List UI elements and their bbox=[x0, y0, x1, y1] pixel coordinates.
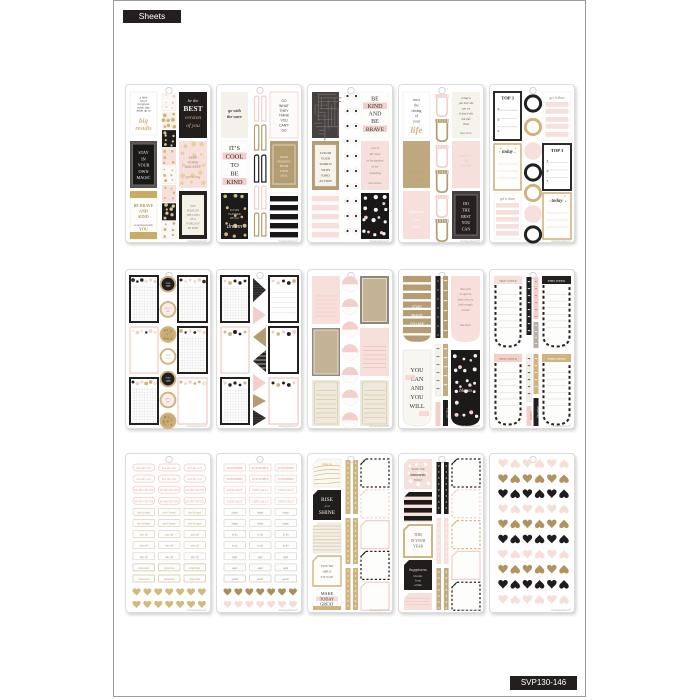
svg-text:thehappyplanner®: thehappyplanner® bbox=[551, 425, 571, 428]
svg-text:WITH A: WITH A bbox=[230, 216, 239, 220]
svg-text:MAKE IT: MAKE IT bbox=[460, 154, 473, 158]
svg-text:YOU: YOU bbox=[166, 358, 171, 360]
svg-text:RISE: RISE bbox=[321, 497, 334, 503]
svg-text:BEST: BEST bbox=[165, 399, 171, 401]
svg-text:BRAVE: BRAVE bbox=[366, 127, 385, 133]
svg-text:dream: dream bbox=[227, 224, 243, 230]
svg-text:THINK: THINK bbox=[279, 114, 290, 118]
svg-text:don’t forget: don’t forget bbox=[188, 523, 201, 526]
svg-text:but this: but this bbox=[462, 117, 472, 121]
svg-text:get it done: get it done bbox=[549, 96, 565, 100]
svg-text:SO MUCH FUN: SO MUCH FUN bbox=[185, 489, 204, 492]
svg-text:thehappyplanner®: thehappyplanner® bbox=[187, 609, 207, 612]
svg-text:ESPECIALLY: ESPECIALLY bbox=[277, 489, 294, 492]
svg-text:GOING: GOING bbox=[188, 161, 199, 165]
svg-text:MAGIC: MAGIC bbox=[137, 175, 151, 180]
svg-text:be open to: be open to bbox=[460, 293, 472, 296]
svg-text:YOU: YOU bbox=[190, 205, 196, 208]
svg-text:BEST: BEST bbox=[461, 214, 471, 219]
svg-text:get it done: get it done bbox=[500, 197, 516, 201]
svg-text:day off: day off bbox=[140, 534, 149, 537]
svg-text:day off: day off bbox=[165, 556, 174, 559]
svg-text:THIS WEEK: THIS WEEK bbox=[499, 279, 518, 283]
svg-text:thehappyplanner®: thehappyplanner® bbox=[460, 609, 480, 612]
svg-text:a bag is: a bag is bbox=[461, 96, 471, 100]
svg-text:DAY: DAY bbox=[166, 401, 171, 404]
svg-text:from: from bbox=[413, 218, 420, 222]
svg-text:of you: of you bbox=[186, 122, 200, 129]
svg-text:go with: go with bbox=[227, 108, 241, 113]
svg-text:TO YOU: TO YOU bbox=[321, 575, 334, 579]
svg-text:the: the bbox=[414, 103, 419, 107]
svg-text:can we: can we bbox=[462, 106, 471, 110]
svg-text:trust: trust bbox=[413, 98, 421, 102]
svg-text:all have: all have bbox=[370, 152, 381, 156]
svg-text:and: and bbox=[324, 504, 329, 508]
svg-text:day off: day off bbox=[191, 545, 200, 548]
svg-text:THE: THE bbox=[462, 207, 470, 212]
svg-text:your: your bbox=[413, 120, 421, 124]
svg-text:best day ever: best day ever bbox=[162, 478, 178, 481]
svg-text:Rae Dunn: Rae Dunn bbox=[460, 131, 472, 135]
svg-text:THIS WEEK: THIS WEEK bbox=[547, 357, 566, 361]
svg-text:bloom: bloom bbox=[459, 389, 472, 394]
svg-text:thehappyplanner®: thehappyplanner® bbox=[278, 425, 298, 428]
svg-text:BE: BE bbox=[371, 97, 379, 103]
svg-text:today: today bbox=[232, 523, 239, 526]
svg-text:thehappyplanner®: thehappyplanner® bbox=[278, 609, 298, 612]
svg-text:AND: AND bbox=[411, 386, 425, 392]
svg-text:IN: IN bbox=[141, 156, 145, 161]
svg-text:TODAY: TODAY bbox=[414, 478, 423, 482]
svg-text:those who are: those who are bbox=[458, 298, 474, 301]
svg-text:goals: goals bbox=[257, 578, 263, 581]
svg-text:you love she: you love she bbox=[458, 101, 474, 105]
svg-text:AN: AN bbox=[464, 159, 469, 163]
svg-text:ESPECIALLY: ESPECIALLY bbox=[277, 500, 294, 503]
svg-text:ESPECIALLY: ESPECIALLY bbox=[226, 489, 243, 492]
svg-text:SHINE: SHINE bbox=[319, 510, 336, 516]
svg-text:to do: to do bbox=[283, 534, 289, 537]
svg-text:WILL: WILL bbox=[410, 404, 425, 410]
svg-text:goals: goals bbox=[232, 578, 238, 581]
svg-text:AND KEEP: AND KEEP bbox=[185, 165, 201, 169]
svg-text:DO: DO bbox=[463, 201, 469, 206]
svg-text:thehappyplanner®: thehappyplanner® bbox=[460, 240, 480, 243]
svg-text:blooms: blooms bbox=[414, 574, 424, 578]
svg-text:SO POSSIBLE: SO POSSIBLE bbox=[226, 478, 243, 481]
svg-text:it don’t wilt: it don’t wilt bbox=[459, 112, 473, 116]
svg-text:big: big bbox=[139, 117, 148, 125]
svg-text:DO: DO bbox=[281, 99, 286, 103]
svg-text:important: important bbox=[189, 567, 200, 570]
svg-text:thehappyplanner®: thehappyplanner® bbox=[369, 425, 389, 428]
svg-text:day off: day off bbox=[165, 534, 174, 537]
svg-text:SOUL: SOUL bbox=[280, 173, 288, 177]
svg-text:thehappyplanner®: thehappyplanner® bbox=[278, 240, 298, 243]
svg-text:KIND: KIND bbox=[280, 155, 288, 159]
svg-text:YOU: YOU bbox=[139, 227, 148, 232]
svg-text:SO POSSIBLE: SO POSSIBLE bbox=[277, 478, 294, 481]
svg-text:KIND: KIND bbox=[226, 179, 243, 186]
svg-text:BE: BE bbox=[230, 171, 238, 178]
svg-text:IN YOUR: IN YOUR bbox=[411, 539, 426, 543]
svg-text:day off: day off bbox=[191, 534, 200, 537]
svg-text:don’t forget: don’t forget bbox=[137, 511, 150, 514]
svg-text:SO POSSIBLE: SO POSSIBLE bbox=[252, 467, 269, 470]
svg-text:YEAR: YEAR bbox=[413, 545, 423, 549]
svg-text:today: today bbox=[551, 199, 563, 204]
svg-text:the wave: the wave bbox=[227, 114, 242, 119]
svg-text:YOU: YOU bbox=[166, 378, 171, 380]
svg-text:MAKE: MAKE bbox=[321, 591, 334, 596]
svg-text:version: version bbox=[185, 115, 201, 121]
svg-text:DO: DO bbox=[281, 128, 286, 132]
svg-text:to do: to do bbox=[257, 534, 263, 537]
svg-text:thehappyplanner®: thehappyplanner® bbox=[460, 425, 480, 428]
svg-text:important: important bbox=[164, 567, 175, 570]
svg-text:BE KIND: BE KIND bbox=[188, 227, 199, 230]
svg-text:best day ever: best day ever bbox=[162, 467, 178, 470]
svg-text:important: important bbox=[138, 567, 149, 570]
svg-text:ESPECIALLY: ESPECIALLY bbox=[251, 489, 268, 492]
svg-text:SO POSSIBLE: SO POSSIBLE bbox=[252, 478, 269, 481]
svg-text:thehappyplanner®: thehappyplanner® bbox=[551, 240, 571, 243]
svg-text:AND: AND bbox=[369, 112, 383, 118]
svg-text:growing: growing bbox=[186, 174, 202, 179]
svg-text:don’t forget: don’t forget bbox=[137, 523, 150, 526]
svg-text:COLOR: COLOR bbox=[320, 151, 332, 155]
svg-text:FROM: FROM bbox=[280, 164, 289, 168]
svg-text:BEST: BEST bbox=[165, 308, 171, 310]
svg-text:to do: to do bbox=[232, 534, 238, 537]
svg-text:happiness: happiness bbox=[409, 567, 427, 572]
svg-text:YOU ARE: YOU ARE bbox=[410, 322, 424, 326]
svg-text:KIND: KIND bbox=[321, 173, 330, 177]
svg-text:Rae Dunn: Rae Dunn bbox=[460, 324, 471, 327]
svg-text:WHERE: WHERE bbox=[411, 314, 423, 318]
svg-text:YOU: YOU bbox=[166, 283, 171, 285]
svg-text:shine on: shine on bbox=[322, 462, 333, 466]
svg-text:appt: appt bbox=[283, 567, 288, 570]
svg-text:YOU: YOU bbox=[411, 368, 425, 374]
svg-text:moment: moment bbox=[410, 472, 426, 477]
svg-text:SO POSSIBLE: SO POSSIBLE bbox=[277, 467, 294, 470]
svg-text:STAY: STAY bbox=[138, 150, 148, 155]
svg-text:BE: BE bbox=[371, 119, 379, 125]
svg-text:SO MUCH FUN: SO MUCH FUN bbox=[160, 500, 179, 503]
svg-text:best day ever: best day ever bbox=[187, 467, 203, 470]
svg-text:SEIZE THE: SEIZE THE bbox=[411, 467, 425, 471]
svg-text:adds up to: adds up to bbox=[136, 109, 150, 113]
svg-text:THIS WEEK: THIS WEEK bbox=[499, 357, 518, 361]
svg-text:appt: appt bbox=[232, 567, 237, 570]
svg-text:you’d: you’d bbox=[370, 146, 379, 150]
svg-text:Joan Rivers: Joan Rivers bbox=[368, 181, 382, 185]
svg-text:bold enough: bold enough bbox=[459, 304, 474, 307]
svg-text:amazing: amazing bbox=[369, 171, 381, 175]
svg-text:HUMANS: HUMANS bbox=[277, 160, 290, 164]
svg-text:DAY: DAY bbox=[166, 310, 171, 313]
svg-text:YOU: YOU bbox=[411, 395, 425, 401]
svg-text:CAN: CAN bbox=[166, 380, 171, 383]
svg-text:THE LIVES: THE LIVES bbox=[186, 214, 200, 217]
svg-text:don’t forget: don’t forget bbox=[163, 523, 176, 526]
svg-text:thehappyplanner®: thehappyplanner® bbox=[187, 425, 207, 428]
svg-text:WORLD: WORLD bbox=[319, 162, 332, 166]
svg-text:appt: appt bbox=[258, 556, 263, 559]
svg-text:to be perfect: to be perfect bbox=[367, 158, 385, 162]
svg-text:today: today bbox=[257, 523, 264, 526]
svg-text:YES: YES bbox=[166, 355, 171, 357]
svg-text:MAKE ON: MAKE ON bbox=[187, 209, 199, 212]
svg-text:day off: day off bbox=[165, 545, 174, 548]
svg-text:does will: does will bbox=[460, 288, 470, 291]
svg-text:best day ever: best day ever bbox=[136, 478, 152, 481]
svg-text:don’t forget: don’t forget bbox=[163, 511, 176, 514]
svg-text:timing: timing bbox=[412, 109, 422, 113]
svg-text:START: START bbox=[412, 305, 422, 309]
svg-text:to do: to do bbox=[257, 545, 263, 548]
svg-text:important: important bbox=[164, 578, 175, 581]
svg-text:THIS WEEK: THIS WEEK bbox=[547, 279, 566, 283]
svg-text:WITH: WITH bbox=[321, 168, 330, 172]
svg-text:SO MUCH FUN: SO MUCH FUN bbox=[185, 500, 204, 503]
svg-text:ESPECIALLY: ESPECIALLY bbox=[226, 500, 243, 503]
svg-text:appt: appt bbox=[232, 556, 237, 559]
svg-text:WORLD OF: WORLD OF bbox=[186, 223, 200, 226]
svg-text:AND: AND bbox=[139, 209, 148, 214]
svg-text:KEEP: KEEP bbox=[189, 156, 198, 160]
svg-text:BEST: BEST bbox=[183, 104, 202, 113]
svg-text:from: from bbox=[415, 578, 421, 582]
svg-text:PLANNER: PLANNER bbox=[228, 212, 240, 216]
svg-text:LOVE: LOVE bbox=[529, 412, 533, 421]
svg-text:GREAT: GREAT bbox=[320, 601, 334, 606]
svg-text:KIND: KIND bbox=[138, 214, 149, 219]
svg-text:ACTION: ACTION bbox=[319, 179, 332, 183]
svg-text:thehappyplanner®: thehappyplanner® bbox=[369, 240, 389, 243]
svg-text:important: important bbox=[138, 578, 149, 581]
svg-text:KIND: KIND bbox=[368, 104, 384, 110]
svg-text:TO: TO bbox=[230, 162, 239, 169]
svg-text:today: today bbox=[283, 511, 290, 514]
svg-text:THEY: THEY bbox=[279, 109, 289, 113]
svg-text:YOU: YOU bbox=[280, 119, 288, 123]
svg-text:today: today bbox=[232, 511, 239, 514]
svg-text:ESPECIALLY: ESPECIALLY bbox=[251, 500, 268, 503]
svg-text:ABLE: ABLE bbox=[323, 569, 332, 573]
svg-text:WHAT: WHAT bbox=[279, 104, 289, 108]
svg-text:THIS: THIS bbox=[414, 533, 422, 537]
svg-text:SO MUCH FUN: SO MUCH FUN bbox=[160, 489, 179, 492]
svg-text:BE BRAVE: BE BRAVE bbox=[134, 203, 154, 208]
svg-text:within: within bbox=[414, 583, 422, 587]
svg-text:important: important bbox=[189, 578, 200, 581]
svg-text:be the: be the bbox=[188, 98, 199, 103]
svg-text:OF A: OF A bbox=[190, 218, 196, 221]
svg-text:results: results bbox=[135, 126, 152, 132]
svg-text:thehappyplanner®: thehappyplanner® bbox=[551, 609, 571, 612]
svg-text:dream big: dream big bbox=[536, 406, 539, 418]
svg-text:don’t forget: don’t forget bbox=[188, 511, 201, 514]
svg-text:EXTRA: EXTRA bbox=[461, 164, 473, 168]
svg-text:SO MUCH FUN: SO MUCH FUN bbox=[134, 500, 153, 503]
svg-text:day off: day off bbox=[140, 545, 149, 548]
svg-text:East: East bbox=[462, 122, 469, 126]
svg-text:to do: to do bbox=[283, 545, 289, 548]
svg-text:YOU: YOU bbox=[462, 220, 471, 225]
svg-text:YOUR: YOUR bbox=[321, 157, 331, 161]
svg-text:blossom: blossom bbox=[409, 209, 423, 214]
svg-text:life: life bbox=[411, 125, 423, 135]
svg-text:YOUR: YOUR bbox=[280, 169, 289, 173]
svg-text:TOP 3: TOP 3 bbox=[501, 96, 514, 101]
svg-text:appt: appt bbox=[283, 556, 288, 559]
svg-text:IT’S: IT’S bbox=[229, 146, 240, 152]
svg-text:IN THIS: IN THIS bbox=[230, 208, 239, 212]
svg-text:today: today bbox=[283, 523, 290, 526]
svg-text:CAN: CAN bbox=[462, 227, 471, 232]
svg-text:CAN: CAN bbox=[166, 285, 171, 288]
svg-text:to do: to do bbox=[232, 545, 238, 548]
svg-text:today: today bbox=[502, 150, 514, 155]
svg-text:within: within bbox=[412, 225, 421, 229]
svg-text:COOL: COOL bbox=[226, 154, 244, 161]
svg-text:goals: goals bbox=[283, 578, 289, 581]
svg-text:to lead: to lead bbox=[462, 309, 470, 312]
svg-text:day off: day off bbox=[191, 556, 200, 559]
svg-text:YOUR: YOUR bbox=[138, 163, 150, 168]
svg-text:OWN: OWN bbox=[138, 169, 148, 174]
svg-text:YOU’RE: YOU’RE bbox=[321, 564, 334, 568]
svg-text:appt: appt bbox=[258, 567, 263, 570]
svg-text:to be: to be bbox=[372, 165, 379, 169]
svg-text:thehappyplanner®: thehappyplanner® bbox=[187, 240, 207, 243]
svg-text:best day ever: best day ever bbox=[187, 478, 203, 481]
svg-text:CAN’T: CAN’T bbox=[279, 124, 289, 128]
svg-text:best day ever: best day ever bbox=[136, 467, 152, 470]
svg-text:SO POSSIBLE: SO POSSIBLE bbox=[226, 467, 243, 470]
svg-text:TOP 3: TOP 3 bbox=[551, 148, 564, 153]
svg-text:day off: day off bbox=[140, 556, 149, 559]
svg-text:SO MUCH FUN: SO MUCH FUN bbox=[134, 489, 153, 492]
svg-text:today: today bbox=[257, 511, 264, 514]
svg-text:FOCUS: FOCUS bbox=[446, 408, 450, 418]
svg-text:thehappyplanner®: thehappyplanner® bbox=[369, 609, 389, 612]
